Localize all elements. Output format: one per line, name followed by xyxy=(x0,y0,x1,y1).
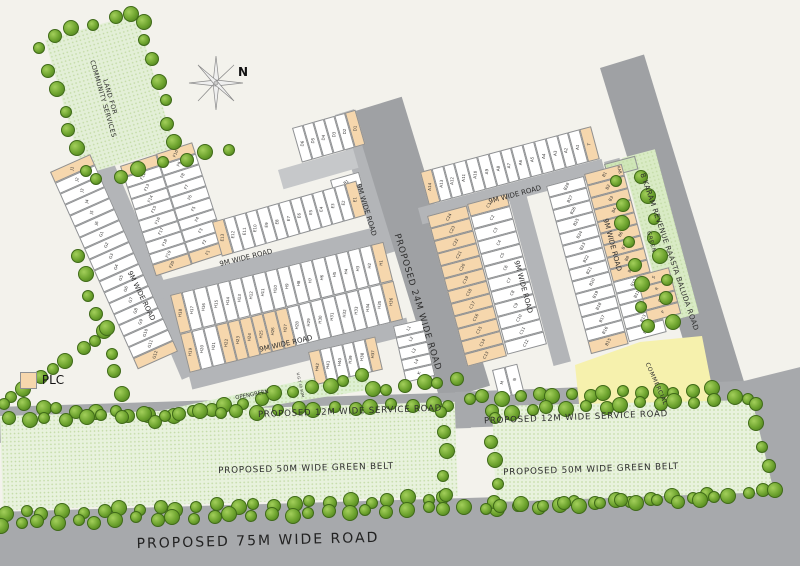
plot-label: H34 xyxy=(366,303,371,311)
plot-label: J4 xyxy=(84,199,89,204)
plot-label: B3 xyxy=(608,195,614,202)
plot-label: P xyxy=(661,310,666,314)
plot-label: E10 xyxy=(253,224,258,232)
plot-label: H10 xyxy=(273,285,278,293)
tree-icon xyxy=(617,385,629,397)
plot-label: H5 xyxy=(332,272,337,278)
plot-label: G9 xyxy=(138,319,144,326)
plot-label: F5 xyxy=(191,206,197,212)
tree-icon xyxy=(634,276,650,292)
plot-label: D3 xyxy=(332,132,337,138)
plot-label: J5 xyxy=(89,210,94,215)
plot-label: F17 xyxy=(158,227,165,236)
plot-label: H37 xyxy=(371,350,376,359)
plot-label: B6 xyxy=(617,231,623,238)
tree-icon xyxy=(208,510,222,524)
plot-label: B19 xyxy=(592,290,600,299)
tree-icon xyxy=(151,74,167,90)
tree-icon xyxy=(484,435,498,449)
tree-icon xyxy=(48,29,62,43)
tree-icon xyxy=(749,397,763,411)
tree-icon xyxy=(464,393,476,405)
plot-label: B27 xyxy=(566,194,574,203)
plot-label: B2 xyxy=(604,183,610,190)
plot-label: H31 xyxy=(330,312,335,320)
plot-label: A1 xyxy=(576,144,581,150)
plot-label: H18 xyxy=(178,309,183,317)
plot-label: H21 xyxy=(212,342,217,350)
plot-label: B25 xyxy=(572,218,580,227)
tree-icon xyxy=(641,319,655,333)
plot-label: H7 xyxy=(309,278,314,284)
plot-label: A3 xyxy=(553,151,558,157)
tree-icon xyxy=(77,341,91,355)
tree-icon xyxy=(302,507,314,519)
tree-icon xyxy=(686,384,700,398)
plot-label: E7 xyxy=(286,216,291,221)
plot-label: H32 xyxy=(342,309,347,317)
plot-label: F8 xyxy=(180,173,186,179)
tree-icon xyxy=(692,492,708,508)
plot-label: C12 xyxy=(522,339,530,348)
plot-label: F15 xyxy=(151,205,158,214)
plot-label: C20 xyxy=(458,263,466,272)
plot-label: A9 xyxy=(485,169,490,175)
plot-label: C9 xyxy=(512,302,518,309)
plot-label: C4 xyxy=(495,239,501,246)
plot-label: C21 xyxy=(455,250,463,259)
plot-label: H40 xyxy=(337,358,342,367)
tree-icon xyxy=(708,491,720,503)
plot-label: L4 xyxy=(414,359,420,365)
plot-label: H38 xyxy=(360,353,365,362)
plot-label: E11 xyxy=(242,227,247,235)
tree-icon xyxy=(89,307,103,321)
plot-label: T xyxy=(587,143,592,146)
tree-icon xyxy=(33,42,45,54)
plot-label: H13 xyxy=(237,294,242,302)
tree-icon xyxy=(450,372,464,386)
plot-label: H30 xyxy=(318,315,323,323)
plot-label: J3 xyxy=(80,188,85,193)
plot-label: E12 xyxy=(231,231,236,239)
plot-label: E2 xyxy=(342,200,347,205)
plot-label: C22 xyxy=(451,238,459,247)
plot-label: E3 xyxy=(331,203,336,208)
plot-label: G3 xyxy=(109,253,115,260)
tree-icon xyxy=(63,20,79,36)
tree-icon xyxy=(423,501,435,513)
tree-icon xyxy=(359,504,371,516)
plot-label: M xyxy=(499,381,504,386)
plot-label: C10 xyxy=(515,313,523,322)
plot-label: H19 xyxy=(188,348,193,356)
tree-icon xyxy=(305,380,319,394)
tree-icon xyxy=(767,482,783,498)
tree-icon xyxy=(82,290,94,302)
plot-label: A2 xyxy=(564,147,569,153)
plot-label: H26 xyxy=(271,327,276,335)
tree-icon xyxy=(487,452,503,468)
plot-label: E9 xyxy=(264,222,269,227)
plot-label: L2 xyxy=(408,336,414,342)
plot-label: H16 xyxy=(202,303,207,311)
plot-label: F1 xyxy=(205,250,211,256)
plot-label: A5 xyxy=(530,157,535,163)
plot-label: F4 xyxy=(194,217,200,223)
plot-label: R xyxy=(654,287,659,292)
plot-label: E13 xyxy=(220,234,225,242)
plot-label: A12 xyxy=(450,177,455,185)
plot-label: H33 xyxy=(354,306,359,314)
plot-label: E6 xyxy=(298,213,303,218)
plot-label: E5 xyxy=(309,210,314,215)
tree-icon xyxy=(180,153,194,167)
tree-icon xyxy=(666,393,682,409)
plot-label: H17 xyxy=(190,306,195,314)
tree-icon xyxy=(188,513,200,525)
plot-label: B15 xyxy=(604,338,612,347)
tree-icon xyxy=(166,134,182,150)
plot-label: D1 xyxy=(353,126,358,132)
plot-label: F20 xyxy=(169,261,176,270)
tree-icon xyxy=(566,388,578,400)
tree-icon xyxy=(107,512,123,528)
tree-icon xyxy=(355,368,369,382)
tree-icon xyxy=(661,274,673,286)
tree-icon xyxy=(748,415,764,431)
plot-label: D4 xyxy=(321,135,326,141)
plot-label: H1 xyxy=(380,260,385,266)
plot-label: C19 xyxy=(461,275,469,284)
plot-label: H6 xyxy=(320,275,325,281)
tree-icon xyxy=(651,494,663,506)
plot-label: D5 xyxy=(310,138,315,144)
tree-icon xyxy=(95,409,107,421)
plot-label: B16 xyxy=(601,326,609,335)
tree-icon xyxy=(437,470,449,482)
tree-icon xyxy=(265,507,279,521)
plot-label: G2 xyxy=(104,242,110,249)
site-plan: J1J2J3J4J5J6G1G2G3G4G5G6G7G8G9G10G11G12F… xyxy=(0,0,800,566)
tree-icon xyxy=(138,34,150,46)
tree-icon xyxy=(114,386,130,402)
plot-label: H35 xyxy=(378,300,383,308)
plot-label: C2 xyxy=(489,214,495,221)
plot-label: G6 xyxy=(123,286,129,293)
tree-icon xyxy=(61,123,75,137)
tree-icon xyxy=(49,81,65,97)
plot-label: G4 xyxy=(113,264,119,271)
plot-label: B21 xyxy=(585,266,593,275)
tree-icon xyxy=(164,509,180,525)
plot-label: C17 xyxy=(468,300,476,309)
tree-icon xyxy=(78,266,94,282)
tree-icon xyxy=(727,389,743,405)
plot-label: C3 xyxy=(492,227,498,234)
plot-label: F6 xyxy=(187,195,193,201)
tree-icon xyxy=(50,402,62,414)
plot-label: J1 xyxy=(70,166,75,171)
plot-label: H3 xyxy=(356,266,361,272)
plc-legend-swatch xyxy=(20,372,37,389)
tree-icon xyxy=(160,117,174,131)
plot-label: A10 xyxy=(473,171,478,179)
tree-icon xyxy=(437,425,451,439)
tree-icon xyxy=(17,397,31,411)
plot-label: J6 xyxy=(94,221,99,226)
plot-label: H25 xyxy=(259,330,264,338)
compass-north-label: N xyxy=(238,65,248,79)
plot-label: C24 xyxy=(445,212,453,221)
tree-icon xyxy=(303,495,315,507)
plot-label: G7 xyxy=(128,297,134,304)
tree-icon xyxy=(197,144,213,160)
plot-label: H8 xyxy=(297,280,302,286)
plot-label: H27 xyxy=(283,324,288,332)
tree-icon xyxy=(337,375,349,387)
plot-label: B1 xyxy=(601,172,607,179)
plot-label: H11 xyxy=(261,288,266,296)
plot-label: C14 xyxy=(478,338,486,347)
tree-icon xyxy=(136,14,152,30)
plot-label: H36 xyxy=(389,298,394,306)
plot-label: H22 xyxy=(224,339,229,347)
tree-icon xyxy=(665,314,681,330)
plc-legend-label: PLC xyxy=(42,373,64,387)
plot-label: B28 xyxy=(563,182,571,191)
plot-label: G1 xyxy=(99,231,105,238)
tree-icon xyxy=(160,94,172,106)
tree-icon xyxy=(109,10,123,24)
plot-label: F14 xyxy=(147,194,154,203)
plot-label: A8 xyxy=(496,166,501,172)
tree-icon xyxy=(756,441,768,453)
plot-label: H29 xyxy=(307,318,312,326)
plot-label: A13 xyxy=(439,180,444,188)
plot-label: E4 xyxy=(320,207,325,212)
plot-label: G11 xyxy=(147,339,154,348)
tree-icon xyxy=(223,144,235,156)
plot-label: L3 xyxy=(411,347,417,353)
plot-label: F10 xyxy=(172,149,179,158)
plot-label: C8 xyxy=(509,289,515,296)
plot-label: F2 xyxy=(201,239,207,245)
compass-north-icon xyxy=(188,55,244,111)
tree-icon xyxy=(221,506,237,522)
plot-label: A4 xyxy=(542,154,547,160)
plot-label: B23 xyxy=(579,242,587,251)
tree-icon xyxy=(616,198,630,212)
tree-icon xyxy=(439,443,455,459)
plot-label: H20 xyxy=(200,345,205,353)
plot-label: G12 xyxy=(152,350,159,359)
tree-icon xyxy=(57,353,73,369)
tree-icon xyxy=(492,478,504,490)
plot-label: A14 xyxy=(428,183,433,191)
plot-label: B17 xyxy=(598,314,606,323)
plot-label: C11 xyxy=(518,326,526,335)
tree-icon xyxy=(71,249,85,263)
tree-icon xyxy=(157,156,169,168)
tree-icon xyxy=(229,404,243,418)
tree-icon xyxy=(87,19,99,31)
tree-icon xyxy=(136,406,152,422)
tree-icon xyxy=(59,413,73,427)
plot-label: F16 xyxy=(154,216,161,225)
tree-icon xyxy=(247,498,259,510)
plot-label: C6 xyxy=(502,264,508,271)
tree-icon xyxy=(89,335,101,347)
tree-icon xyxy=(539,400,553,414)
tree-icon xyxy=(537,500,549,512)
plot-label: H9 xyxy=(285,283,290,289)
plot-label: A6 xyxy=(519,160,524,166)
tree-icon xyxy=(38,412,50,424)
tree-icon xyxy=(594,497,606,509)
plot-label: H12 xyxy=(249,291,254,299)
plot-label: N xyxy=(512,378,517,382)
plot-label: C7 xyxy=(505,277,511,284)
plot-label: H4 xyxy=(344,269,349,275)
plot-label: B20 xyxy=(588,278,596,287)
tree-icon xyxy=(762,459,776,473)
plot-label: C16 xyxy=(472,313,480,322)
plot-label: G10 xyxy=(142,328,149,337)
tree-icon xyxy=(87,516,101,530)
plot-label: B22 xyxy=(582,254,590,263)
tree-icon xyxy=(151,513,165,527)
plot-label: J2 xyxy=(75,177,80,182)
plot-label: G8 xyxy=(133,308,139,315)
plot-label: H41 xyxy=(326,360,331,369)
tree-icon xyxy=(628,495,644,511)
tree-icon xyxy=(172,407,186,421)
tree-icon xyxy=(365,381,381,397)
tree-icon xyxy=(610,175,622,187)
tree-icon xyxy=(439,488,453,502)
tree-icon xyxy=(114,170,128,184)
plot-label: F7 xyxy=(184,184,190,190)
plot-label: C18 xyxy=(465,288,473,297)
plot-label: F13 xyxy=(143,183,150,192)
plot-label: C15 xyxy=(475,325,483,334)
plot-label: H15 xyxy=(214,300,219,308)
plot-label: F3 xyxy=(198,228,204,234)
tree-icon xyxy=(571,498,587,514)
tree-icon xyxy=(322,504,336,518)
tree-icon xyxy=(398,379,412,393)
plot-label: D6 xyxy=(300,141,305,147)
tree-icon xyxy=(60,106,72,118)
plot-label: E8 xyxy=(275,219,280,224)
plot-label: H2 xyxy=(368,263,373,269)
tree-icon xyxy=(245,510,257,522)
plot-label: H14 xyxy=(226,297,231,305)
plot-label: F19 xyxy=(165,250,172,259)
plot-label: A11 xyxy=(462,174,467,182)
tree-icon xyxy=(107,364,121,378)
plot-label: D2 xyxy=(342,129,347,135)
plot-label: C13 xyxy=(482,351,490,360)
tree-icon xyxy=(106,348,118,360)
plot-label: C23 xyxy=(448,225,456,234)
plot-label: H23 xyxy=(236,336,241,344)
tree-icon xyxy=(79,409,95,425)
tree-icon xyxy=(380,384,392,396)
tree-icon xyxy=(30,514,44,528)
tree-icon xyxy=(69,140,85,156)
tree-icon xyxy=(145,52,159,66)
plot-label: H28 xyxy=(295,321,300,329)
plot-label: B18 xyxy=(595,302,603,311)
plot-label: H42 xyxy=(315,363,320,372)
plot-label: E1 xyxy=(353,197,358,202)
plot-label: S xyxy=(651,275,656,279)
tree-icon xyxy=(623,236,635,248)
tree-icon xyxy=(90,173,102,185)
tree-icon xyxy=(417,374,433,390)
plot-label: H39 xyxy=(348,355,353,364)
tree-icon xyxy=(480,503,492,515)
plot-label: G5 xyxy=(118,275,124,282)
plot-label: B24 xyxy=(575,230,583,239)
plot-label: L1 xyxy=(406,325,412,331)
tree-icon xyxy=(2,411,16,425)
plot-label: H24 xyxy=(247,333,252,341)
plot-label: B26 xyxy=(569,206,577,215)
tree-icon xyxy=(99,320,115,336)
plot-label: F18 xyxy=(161,239,168,248)
tree-icon xyxy=(50,515,66,531)
plot-label: A7 xyxy=(507,163,512,169)
plot-label: C5 xyxy=(499,252,505,259)
tree-icon xyxy=(41,64,55,78)
